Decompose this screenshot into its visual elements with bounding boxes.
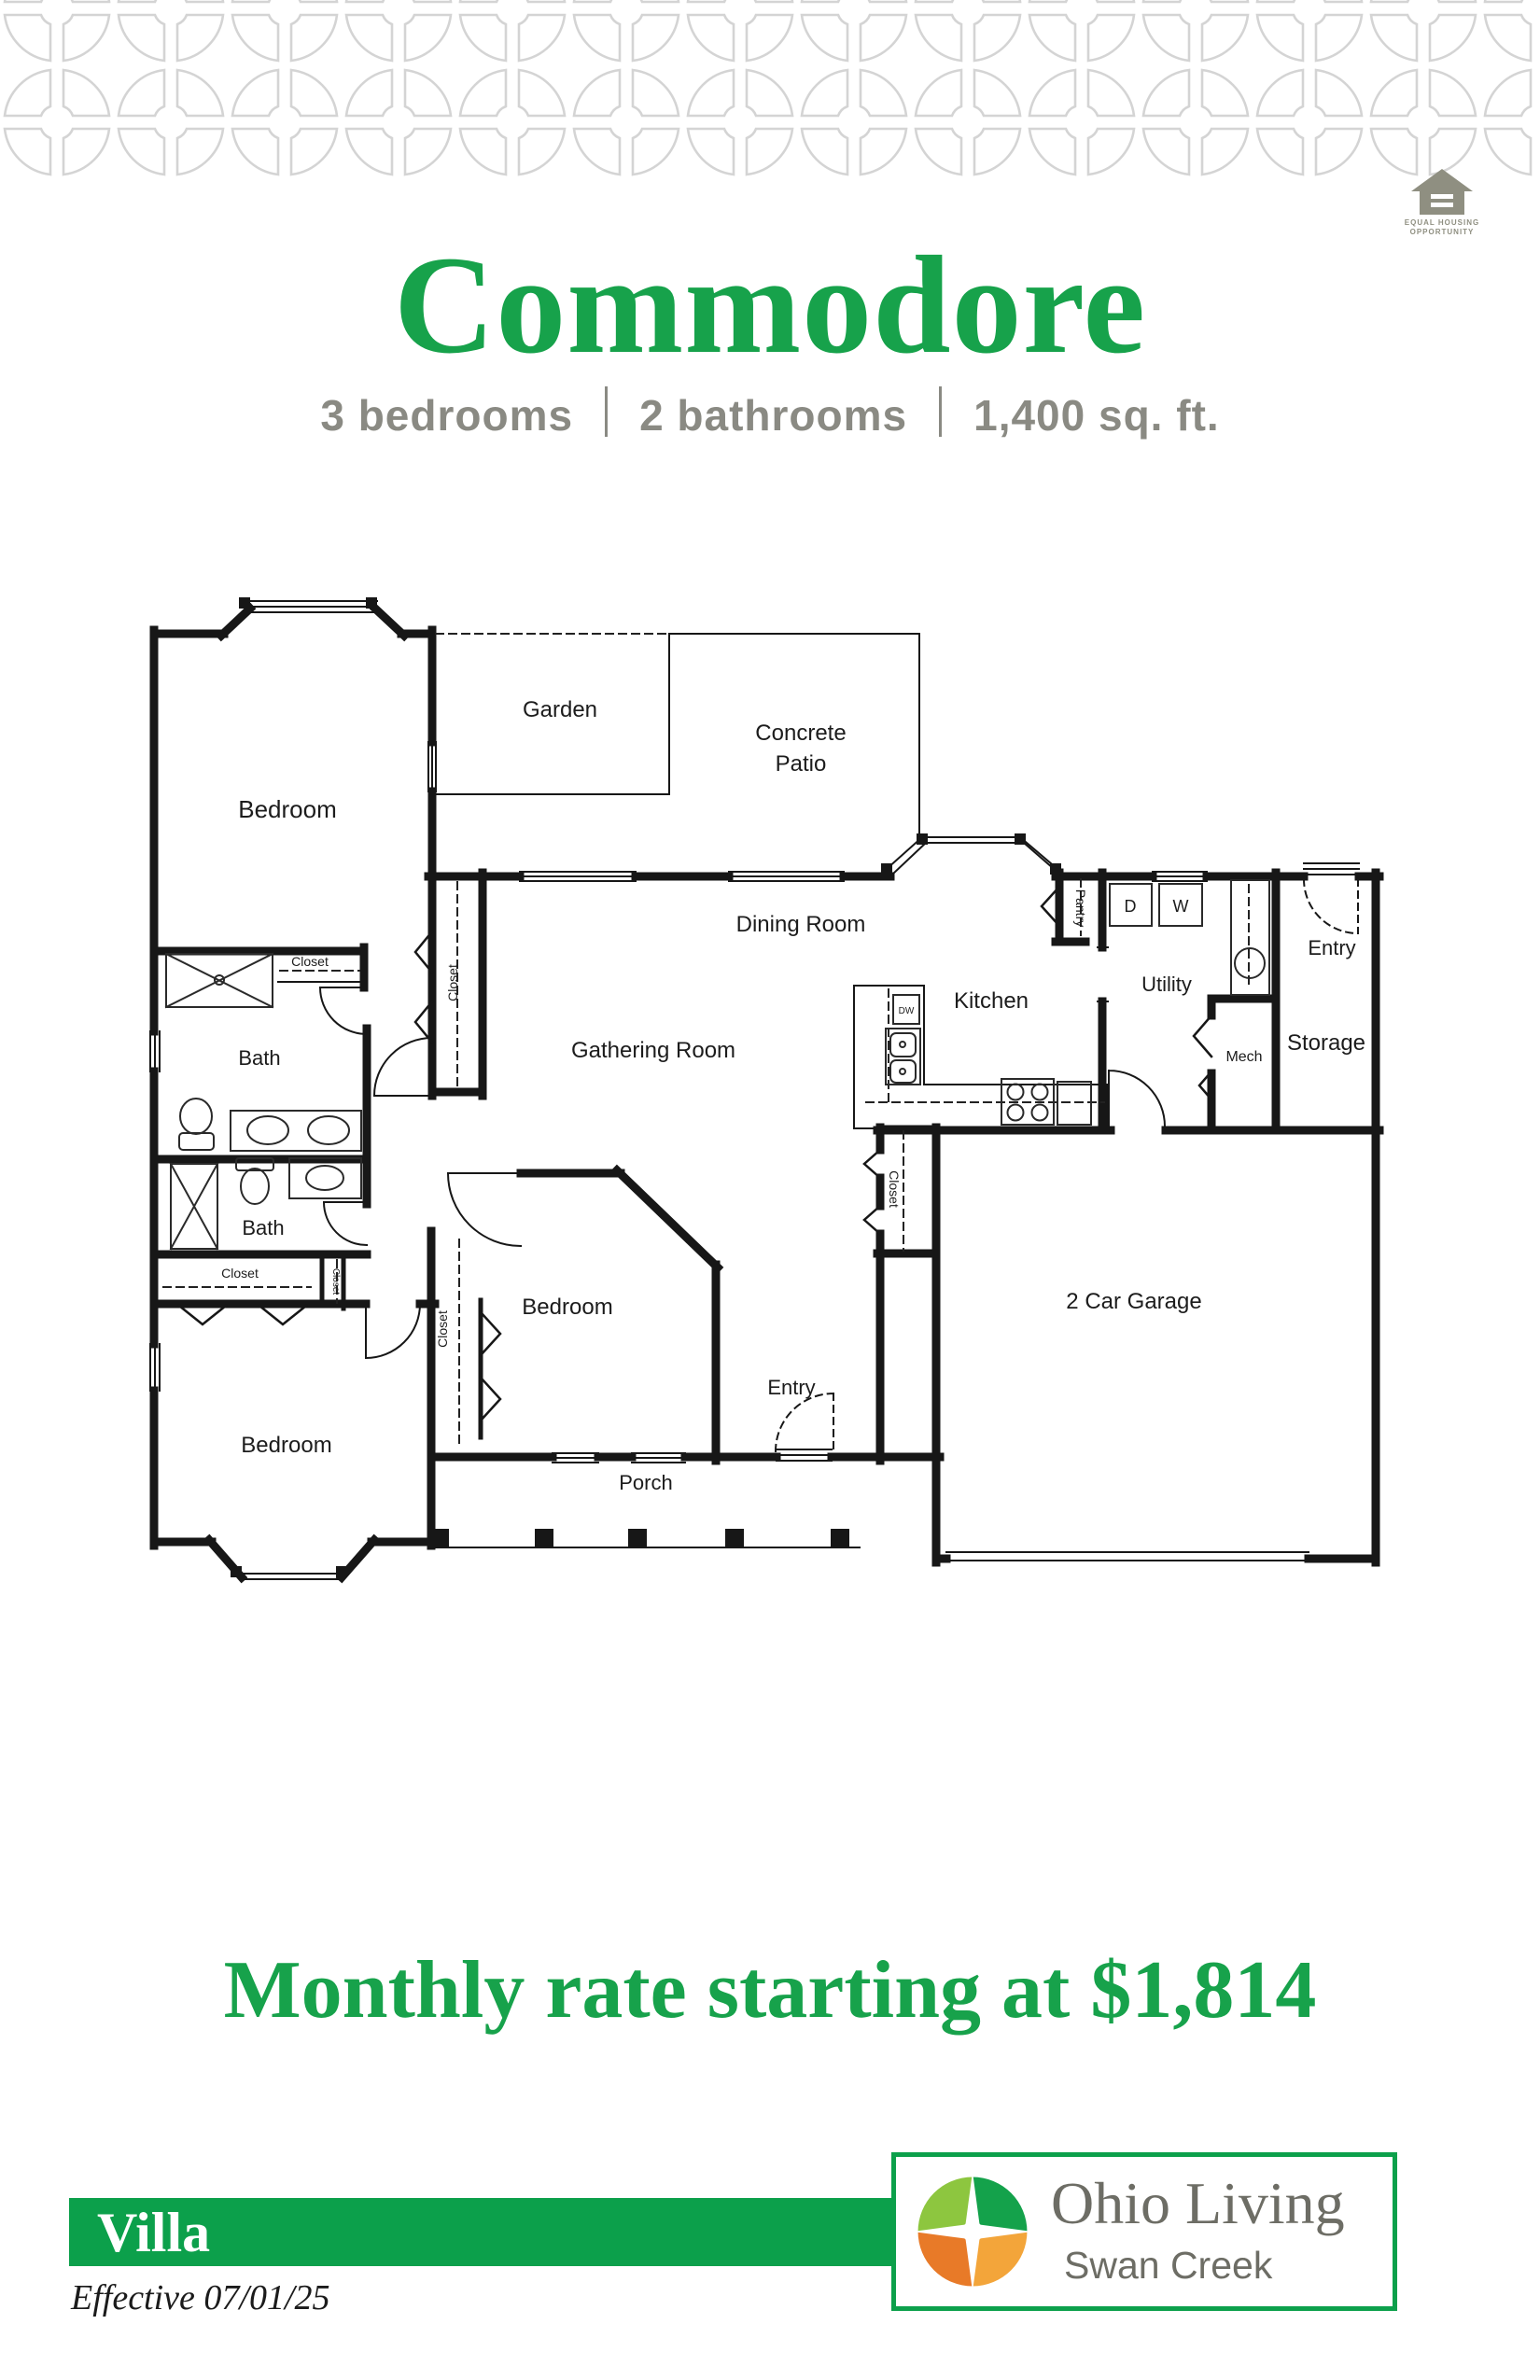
floorplan-walls xyxy=(154,609,1379,1577)
room-label-bath-2: Bath xyxy=(242,1216,284,1239)
brand-name: Ohio Living xyxy=(1051,2174,1345,2233)
room-label-dryer: D xyxy=(1125,897,1137,916)
unit-type-bar: Villa xyxy=(69,2198,909,2266)
room-label-utility: Utility xyxy=(1141,973,1192,996)
monthly-rate: Monthly rate starting at $1,814 xyxy=(0,1943,1540,2037)
room-label-bedroom-1: Bedroom xyxy=(238,795,337,823)
vanity-icon xyxy=(231,1111,361,1151)
room-label-kitchen: Kitchen xyxy=(954,988,1029,1014)
room-label-entry-top: Entry xyxy=(1308,936,1355,959)
room-label-gathering-room: Gathering Room xyxy=(571,1038,735,1063)
spec-divider xyxy=(939,386,942,437)
room-label-washer: W xyxy=(1173,897,1189,916)
brand-community: Swan Creek xyxy=(1064,2243,1272,2288)
door-swing-arcs xyxy=(320,987,1165,1358)
room-label-bath-1: Bath xyxy=(238,1046,280,1070)
room-label-closet-hall: Closet xyxy=(445,964,460,1001)
room-label-concrete-patio-1: Concrete xyxy=(755,721,846,746)
spec-sqft: 1,400 sq. ft. xyxy=(973,391,1220,440)
room-label-closet-b3a: Closet xyxy=(221,1266,259,1281)
room-label-porch: Porch xyxy=(619,1471,672,1494)
floor-plan: BedroomGardenConcretePatioDining RoomGat… xyxy=(150,597,1379,1579)
room-label-mech: Mech xyxy=(1225,1049,1262,1065)
floorplan-closet-walls xyxy=(322,1127,936,1437)
spec-divider xyxy=(605,386,608,437)
room-label-closet-entry: Closet xyxy=(887,1170,902,1208)
room-label-pantry: Pantry xyxy=(1073,889,1088,927)
spec-bathrooms: 2 bathrooms xyxy=(639,391,907,440)
room-label-closet-b1: Closet xyxy=(291,954,329,969)
room-label-closet-b2: Closet xyxy=(435,1310,450,1348)
room-label-closet-b3b: Closet xyxy=(330,1268,341,1295)
room-label-storage: Storage xyxy=(1287,1030,1365,1056)
room-label-garage: 2 Car Garage xyxy=(1066,1289,1201,1314)
flyer-page: EQUAL HOUSING OPPORTUNITY xyxy=(0,0,1540,2380)
equal-housing-text-1: EQUAL HOUSING xyxy=(1405,218,1479,227)
equal-housing-icon: EQUAL HOUSING OPPORTUNITY xyxy=(1405,169,1479,236)
unit-type-label: Villa xyxy=(97,2198,210,2267)
spec-bedrooms: 3 bedrooms xyxy=(320,391,573,440)
room-label-concrete-patio-2: Patio xyxy=(776,751,827,777)
room-label-dishwasher: DW xyxy=(899,1006,915,1016)
page-title: Commodore xyxy=(0,235,1540,375)
room-label-entry-bottom: Entry xyxy=(767,1376,815,1399)
room-label-garden: Garden xyxy=(523,697,597,722)
room-label-bedroom-3: Bedroom xyxy=(241,1433,331,1458)
toilet-icon xyxy=(180,1099,212,1134)
ohio-living-logo-icon xyxy=(911,2170,1034,2293)
sink-icon xyxy=(289,1158,361,1198)
exterior-door-swing-arcs xyxy=(776,879,1358,1451)
closet-door-chevrons xyxy=(179,887,1211,1421)
effective-date: Effective 07/01/25 xyxy=(71,2277,330,2318)
brand-logo-box: Ohio Living Swan Creek xyxy=(891,2152,1397,2311)
room-label-bedroom-2: Bedroom xyxy=(522,1295,612,1320)
decorative-pattern xyxy=(0,0,1540,177)
room-label-dining-room: Dining Room xyxy=(736,912,866,937)
specs-line: 3 bedrooms2 bathrooms1,400 sq. ft. xyxy=(0,386,1540,444)
